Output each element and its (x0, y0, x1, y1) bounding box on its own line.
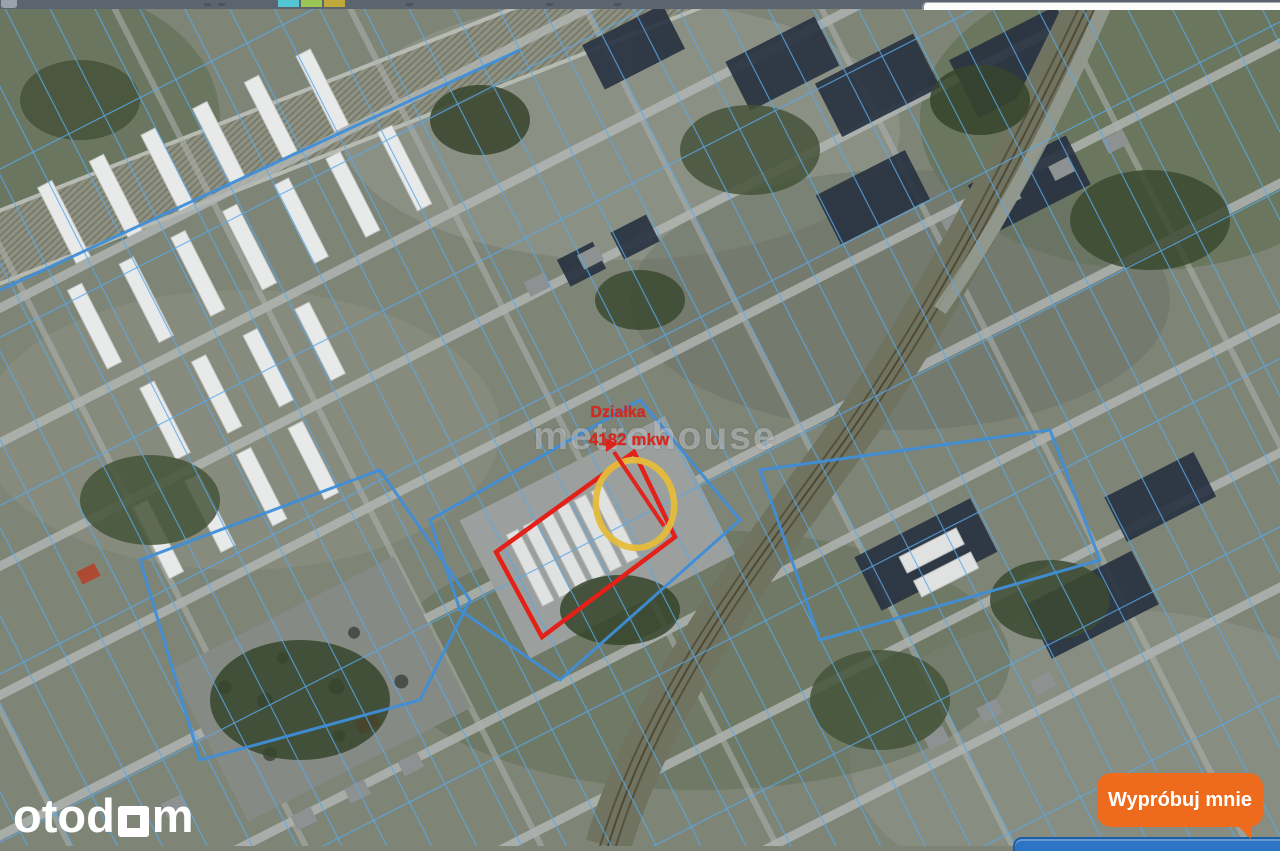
logo-text-suffix: m (152, 792, 194, 839)
browser-dropdown-sliver (922, 2, 1280, 10)
annotation-parcel-area: 4182 mkw (589, 430, 669, 450)
logo-square-o-icon (118, 806, 149, 837)
chat-bar-partial[interactable] (1013, 837, 1280, 851)
toolbar-glyph-icon (204, 3, 211, 6)
browser-toolbar-strip (0, 0, 1280, 9)
bookmark-icon[interactable] (278, 0, 299, 7)
browser-tab-corner[interactable] (1, 0, 17, 8)
toolbar-glyph-icon (406, 3, 413, 6)
toolbar-glyph-icon (546, 3, 553, 6)
annotation-parcel-label: Działka (590, 404, 645, 422)
bookmark-icon[interactable] (301, 0, 322, 7)
bookmark-icon[interactable] (324, 0, 345, 7)
logo-text-prefix: otod (13, 792, 115, 839)
otodom-logo: otod m (13, 792, 194, 839)
try-me-button[interactable]: Wypróbuj mnie (1097, 773, 1263, 827)
toolbar-glyph-icon (218, 3, 225, 6)
toolbar-glyph-icon (614, 3, 621, 6)
